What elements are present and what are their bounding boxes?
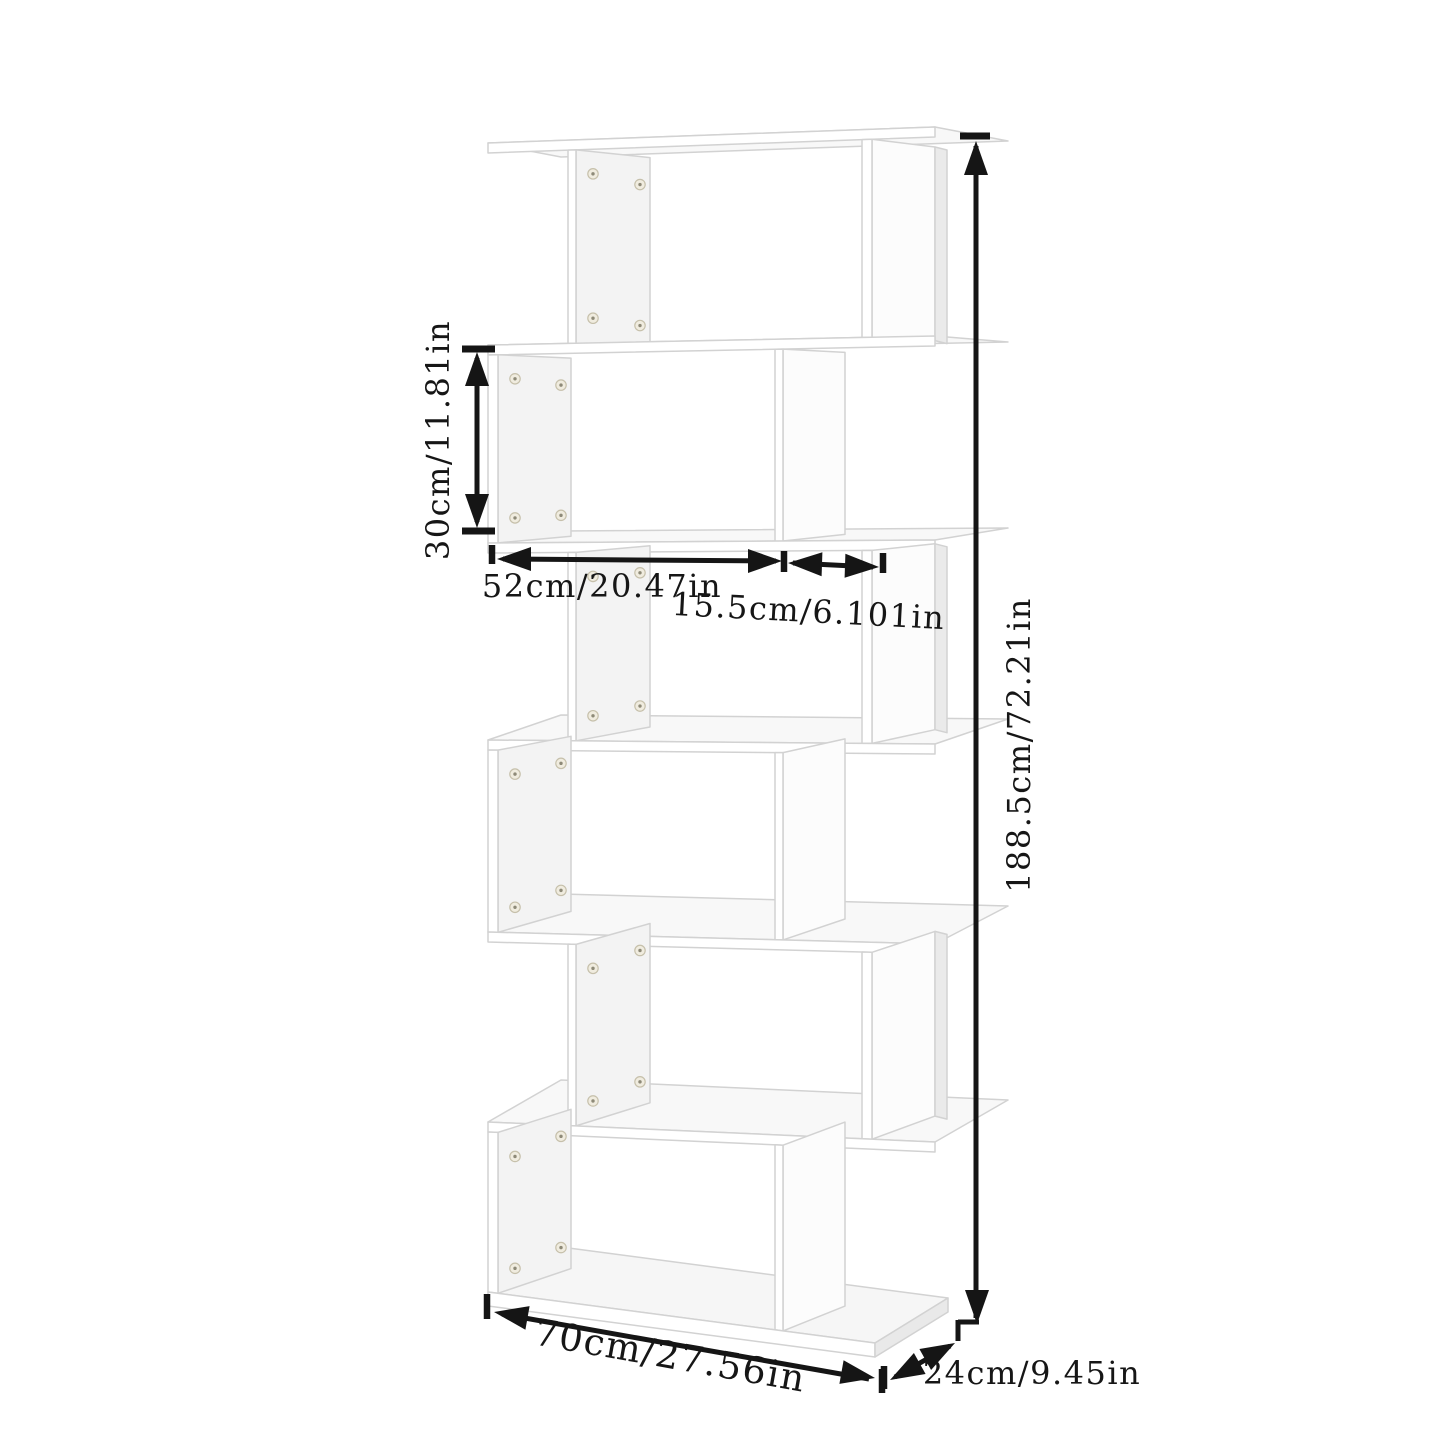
panel-front-edge	[488, 1132, 498, 1293]
panel-side-face	[872, 544, 935, 744]
screw-icon	[513, 772, 516, 775]
screw-icon	[591, 1099, 594, 1102]
screw-icon	[591, 967, 594, 970]
panel-side-face	[783, 1122, 845, 1331]
screw-icon	[638, 1080, 641, 1083]
screw-icon	[638, 183, 641, 186]
panel-front-edge	[862, 550, 872, 743]
compartment-height-label: 30cm/11.81in	[419, 320, 457, 560]
panel-front-edge	[488, 355, 498, 543]
panel-front-edge	[775, 1145, 783, 1331]
panel-front-edge	[568, 150, 576, 344]
shelf-board-front	[488, 336, 935, 355]
panel-side-face	[783, 349, 845, 541]
panel-outer-edge	[935, 931, 947, 1119]
dimension-arrowhead	[788, 552, 822, 576]
total-height-label: 188.5cm/72.21in	[1000, 597, 1038, 893]
screw-icon	[559, 1135, 562, 1138]
screw-icon	[591, 714, 594, 717]
dimension-arrowhead	[748, 549, 782, 573]
screw-icon	[513, 1267, 516, 1270]
screw-icon	[559, 1246, 562, 1249]
dimension-arrowhead	[890, 1353, 926, 1380]
dimension-line	[503, 559, 776, 561]
screw-icon	[638, 704, 641, 707]
panel-front-edge	[775, 349, 783, 541]
dimension-arrowhead	[839, 1360, 875, 1384]
panel-outer-edge	[935, 147, 947, 344]
dimension-arrowhead	[465, 494, 489, 528]
panel-front-edge	[568, 944, 576, 1126]
dimension-arrowhead	[465, 352, 489, 386]
screw-icon	[591, 317, 594, 320]
depth-label: 24cm/9.45in	[923, 1354, 1141, 1392]
screw-icon	[559, 514, 562, 517]
screw-icon	[638, 324, 641, 327]
panel-side-face	[783, 739, 845, 940]
screw-icon	[513, 377, 516, 380]
screw-icon	[559, 383, 562, 386]
panel-front-edge	[488, 750, 498, 932]
dimension-arrowhead	[494, 1306, 530, 1330]
screw-icon	[513, 1155, 516, 1158]
panel-front-edge	[862, 139, 872, 337]
panel-side-face	[872, 139, 935, 340]
screw-icon	[513, 906, 516, 909]
dimension-arrowhead	[965, 1290, 989, 1324]
bookcase	[488, 127, 1008, 1357]
panel-side-face	[872, 931, 935, 1139]
screw-icon	[513, 516, 516, 519]
screw-icon	[591, 172, 594, 175]
panel-outer-edge	[935, 544, 947, 733]
dimension-arrowhead	[964, 141, 988, 175]
screw-icon	[559, 889, 562, 892]
panel-front-edge	[775, 753, 783, 940]
panel-front-edge	[862, 952, 872, 1139]
screw-icon	[638, 949, 641, 952]
product-dimension-diagram: 188.5cm/72.21in30cm/11.81in52cm/20.47in1…	[0, 0, 1445, 1445]
screw-icon	[559, 762, 562, 765]
bookshelf-diagram: 188.5cm/72.21in30cm/11.81in52cm/20.47in1…	[0, 0, 1445, 1445]
